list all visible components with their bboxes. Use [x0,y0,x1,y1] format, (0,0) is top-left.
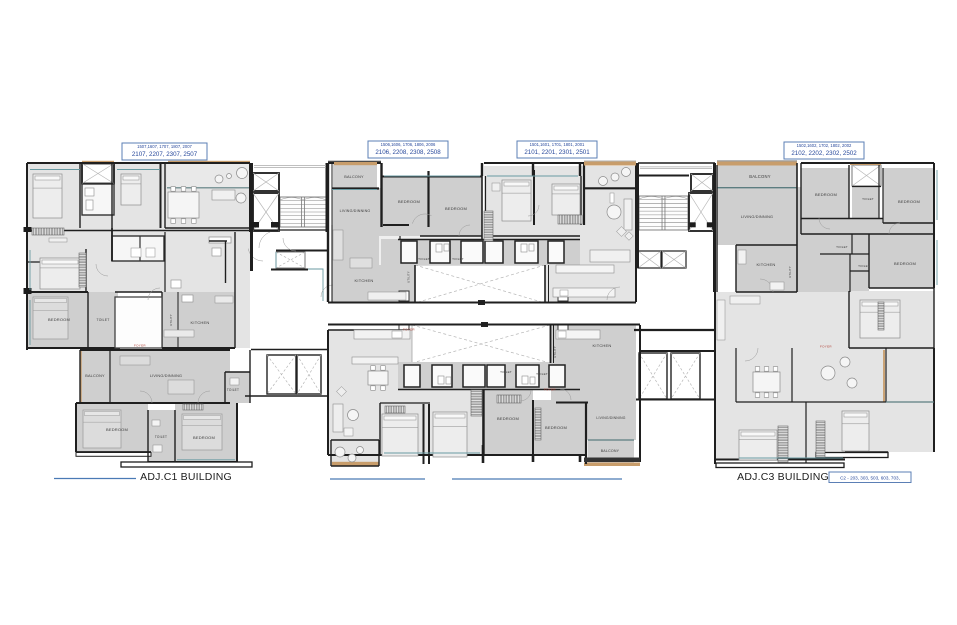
svg-text:2107, 2207, 2307, 2507: 2107, 2207, 2307, 2507 [132,151,198,158]
svg-text:BEDROOM: BEDROOM [894,261,916,266]
svg-text:FOYER: FOYER [820,345,832,349]
svg-text:BALCONY: BALCONY [344,175,364,179]
svg-text:ADJ.C1 BUILDING: ADJ.C1 BUILDING [140,471,232,483]
svg-text:1502,1602, 1702, 1802, 2002: 1502,1602, 1702, 1802, 2002 [797,143,852,148]
svg-text:LIVING/DINNING: LIVING/DINNING [150,374,182,378]
svg-text:BALCONY: BALCONY [749,174,770,179]
svg-text:C2 - 203, 303, 503, 603, 703,: C2 - 203, 303, 503, 603, 703, [840,476,900,481]
svg-text:TOILET: TOILET [418,257,430,261]
svg-text:FOYER: FOYER [134,344,146,348]
svg-text:UTILITY: UTILITY [407,271,411,283]
svg-text:2106, 2208, 2308, 2508: 2106, 2208, 2308, 2508 [375,149,441,156]
svg-text:LIVING/DINNING: LIVING/DINNING [596,416,625,420]
svg-text:KITCHEN: KITCHEN [355,278,374,283]
svg-text:TOILET: TOILET [862,197,874,201]
svg-text:TOILET: TOILET [227,388,239,392]
svg-text:FOYER: FOYER [403,328,415,332]
svg-text:BEDROOM: BEDROOM [193,435,215,440]
svg-text:TOILET: TOILET [858,264,870,268]
svg-text:KITCHEN: KITCHEN [593,343,612,348]
svg-text:1501,1601, 1701, 1801, 2001: 1501,1601, 1701, 1801, 2001 [530,142,585,147]
svg-text:KITCHEN: KITCHEN [191,320,210,325]
svg-text:1507,1607, 1707, 1807, 2007: 1507,1607, 1707, 1807, 2007 [137,144,192,149]
svg-text:2101, 2201, 2301, 2501: 2101, 2201, 2301, 2501 [524,149,590,156]
svg-text:UTILITY: UTILITY [788,266,792,278]
svg-text:BALCONY: BALCONY [601,449,620,453]
svg-text:TOILET: TOILET [452,257,464,261]
svg-text:TOILET: TOILET [155,435,167,439]
svg-text:KITCHEN: KITCHEN [757,262,776,267]
svg-text:TOILET: TOILET [836,245,848,249]
svg-text:TOILET: TOILET [96,318,109,322]
svg-text:BEDROOM: BEDROOM [398,199,420,204]
svg-text:BEDROOM: BEDROOM [106,427,128,432]
svg-text:BEDROOM: BEDROOM [898,199,920,204]
svg-text:BEDROOM: BEDROOM [445,206,467,211]
svg-text:BEDROOM: BEDROOM [497,416,519,421]
svg-text:2102, 2202, 2302, 2502: 2102, 2202, 2302, 2502 [791,150,857,157]
svg-text:UTILITY: UTILITY [553,346,557,358]
svg-text:LIVING/DINNING: LIVING/DINNING [340,209,371,213]
svg-text:BEDROOM: BEDROOM [48,317,70,322]
svg-text:BEDROOM: BEDROOM [815,192,837,197]
svg-text:TOILET: TOILET [500,370,512,374]
svg-text:UTILITY: UTILITY [169,314,173,326]
svg-text:ADJ.C3 BUILDING: ADJ.C3 BUILDING [737,471,829,483]
svg-text:BALCONY: BALCONY [85,374,105,378]
svg-text:BEDROOM: BEDROOM [545,425,567,430]
svg-text:LIVING/DINNING: LIVING/DINNING [741,215,773,219]
svg-text:1506,1606, 1706, 1806, 2006: 1506,1606, 1706, 1806, 2006 [381,142,436,147]
svg-text:TOILET: TOILET [536,372,548,376]
svg-text:FOYER: FOYER [544,388,556,392]
